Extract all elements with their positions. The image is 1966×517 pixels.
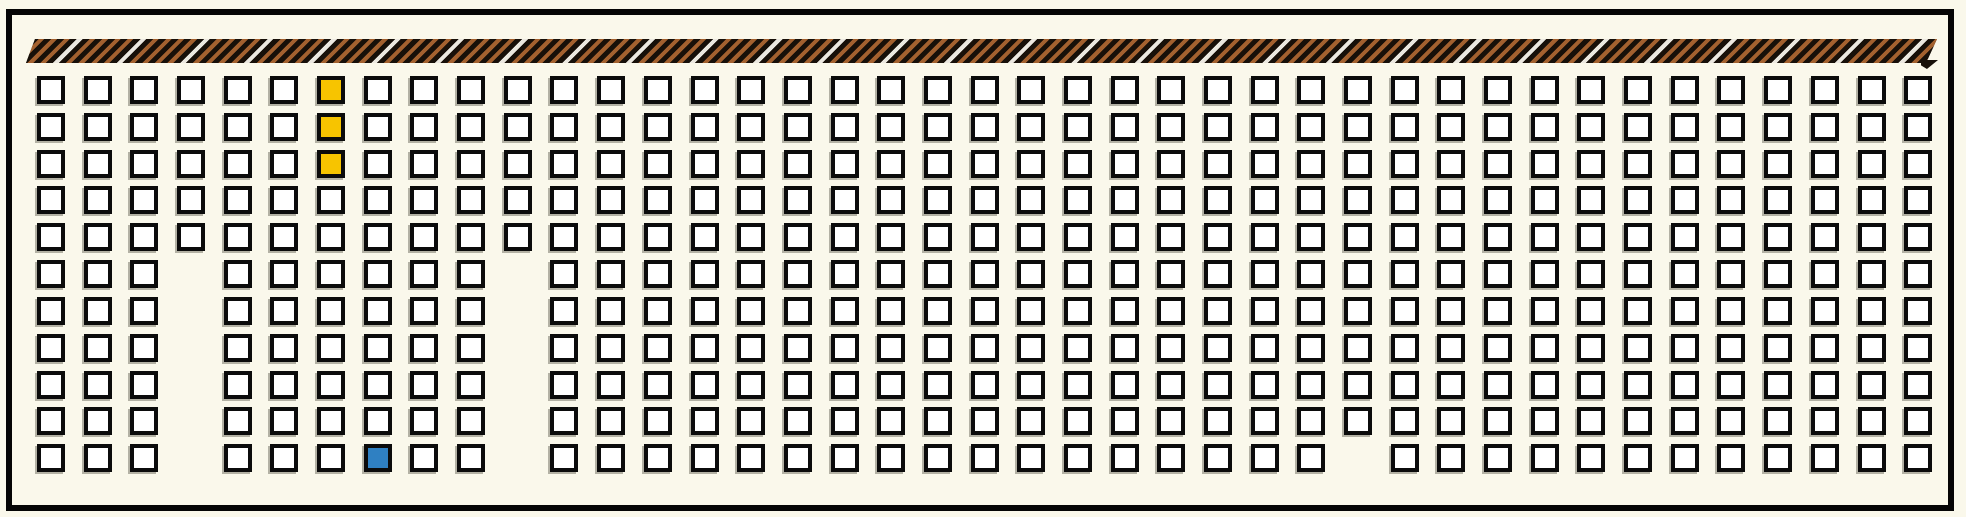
- seat-cell: [1437, 76, 1465, 104]
- seat-cell: [317, 260, 345, 288]
- seat-cell: [1671, 113, 1699, 141]
- seat-cell: [130, 150, 158, 178]
- seat-cell: [1811, 113, 1839, 141]
- seat-cell: [84, 407, 112, 435]
- seat-cell: [831, 371, 859, 399]
- seat-cell: [784, 371, 812, 399]
- seat-cell: [784, 186, 812, 214]
- seat-cell: [1157, 113, 1185, 141]
- seat-cell: [737, 76, 765, 104]
- seat-cell: [784, 334, 812, 362]
- seat-cell: [130, 76, 158, 104]
- seat-cell: [597, 223, 625, 251]
- seat-cell: [1624, 334, 1652, 362]
- seat-cell: [410, 113, 438, 141]
- seat-cell: [1624, 186, 1652, 214]
- seat-cell: [737, 407, 765, 435]
- seat-cell: [644, 444, 672, 472]
- seat-cell: [1764, 334, 1792, 362]
- seat-cell: [1531, 113, 1559, 141]
- seat-cell: [37, 223, 65, 251]
- seat-cell: [971, 113, 999, 141]
- seat-cell: [364, 186, 392, 214]
- seat-cell: [1764, 223, 1792, 251]
- seat-cell: [1064, 371, 1092, 399]
- seat-cell: [1717, 113, 1745, 141]
- seat-cell: [224, 297, 252, 325]
- seat-cell: [691, 407, 719, 435]
- seat-cell: [691, 371, 719, 399]
- seat-cell: [971, 334, 999, 362]
- seat-cell: [1111, 407, 1139, 435]
- seat-cell: [737, 444, 765, 472]
- seat-cell: [1624, 297, 1652, 325]
- seat-cell: [1111, 76, 1139, 104]
- seat-cell: [410, 223, 438, 251]
- seat-cell: [924, 150, 952, 178]
- seat-cell: [1391, 113, 1419, 141]
- seat-cell: [364, 371, 392, 399]
- seat-cell: [924, 113, 952, 141]
- seat-cell: [597, 260, 625, 288]
- seat-cell: [1064, 334, 1092, 362]
- seat-cell: [924, 186, 952, 214]
- seat-cell: [1157, 371, 1185, 399]
- seat-cell: [364, 150, 392, 178]
- seat-cell: [177, 113, 205, 141]
- seat-cell: [270, 260, 298, 288]
- seat-cell: [971, 260, 999, 288]
- seat-cell: [1764, 186, 1792, 214]
- seat-cell: [1017, 186, 1045, 214]
- seat-cell: [691, 150, 719, 178]
- seat-cell: [831, 76, 859, 104]
- seat-cell: [1624, 407, 1652, 435]
- seat-cell: [457, 260, 485, 288]
- seat-cell: [737, 223, 765, 251]
- seat-cell: [1017, 407, 1045, 435]
- seat-cell: [1017, 260, 1045, 288]
- seat-cell: [1391, 223, 1419, 251]
- seat-cell: [37, 334, 65, 362]
- seat-cell: [1111, 260, 1139, 288]
- seat-cell: [1717, 186, 1745, 214]
- seat-cell: [1437, 297, 1465, 325]
- seat-cell-yellow: [317, 150, 345, 178]
- seat-cell: [1017, 334, 1045, 362]
- seat-cell: [1111, 186, 1139, 214]
- seat-cell: [597, 150, 625, 178]
- seat-cell: [644, 297, 672, 325]
- seat-cell: [1157, 150, 1185, 178]
- seat-cell: [457, 444, 485, 472]
- seat-cell: [1157, 334, 1185, 362]
- figure-canvas: [0, 0, 1966, 517]
- seat-cell: [457, 334, 485, 362]
- seat-cell: [1017, 297, 1045, 325]
- seat-cell: [1111, 113, 1139, 141]
- seat-cell: [550, 444, 578, 472]
- seat-cell: [410, 76, 438, 104]
- seat-cell: [270, 186, 298, 214]
- seat-cell: [317, 223, 345, 251]
- seat-cell: [1531, 444, 1559, 472]
- seat-cell: [1577, 186, 1605, 214]
- seat-cell: [877, 371, 905, 399]
- seat-cell: [1904, 113, 1932, 141]
- seat-cell: [1764, 260, 1792, 288]
- seat-cell: [1017, 371, 1045, 399]
- seat-cell: [1577, 407, 1605, 435]
- seat-cell: [1717, 297, 1745, 325]
- seat-cell: [1344, 407, 1372, 435]
- seat-cell: [924, 260, 952, 288]
- seat-cell: [1577, 113, 1605, 141]
- seat-cell: [1671, 371, 1699, 399]
- seat-cell: [1764, 113, 1792, 141]
- seat-cell: [1577, 334, 1605, 362]
- seat-cell: [1157, 76, 1185, 104]
- seat-cell: [877, 113, 905, 141]
- seat-cell: [1297, 334, 1325, 362]
- seat-cell: [1437, 186, 1465, 214]
- seat-cell: [877, 260, 905, 288]
- seat-cell: [1764, 444, 1792, 472]
- seat-cell: [737, 260, 765, 288]
- seat-cell-blue: [364, 444, 392, 472]
- seat-cell: [37, 186, 65, 214]
- seat-cell: [1204, 113, 1232, 141]
- seat-cell: [831, 334, 859, 362]
- seat-cell: [1437, 371, 1465, 399]
- seat-cell: [831, 444, 859, 472]
- seat-cell: [1484, 407, 1512, 435]
- seat-cell: [1251, 444, 1279, 472]
- seat-cell: [597, 186, 625, 214]
- seat-cell: [130, 297, 158, 325]
- seat-cell: [1577, 76, 1605, 104]
- seat-cell: [737, 113, 765, 141]
- seat-cell: [1577, 297, 1605, 325]
- seat-cell: [1251, 76, 1279, 104]
- seat-cell: [37, 297, 65, 325]
- seat-cell: [597, 371, 625, 399]
- seat-cell: [410, 297, 438, 325]
- seat-cell: [364, 76, 392, 104]
- seat-cell: [971, 407, 999, 435]
- seat-cell: [37, 371, 65, 399]
- seat-cell: [1904, 371, 1932, 399]
- seat-cell: [1531, 297, 1559, 325]
- seat-cell: [37, 407, 65, 435]
- seat-cell: [1204, 223, 1232, 251]
- seat-cell: [1811, 260, 1839, 288]
- seat-cell: [224, 371, 252, 399]
- seat-cell: [877, 334, 905, 362]
- seat-cell: [550, 76, 578, 104]
- seat-cell: [971, 223, 999, 251]
- seat-cell: [1484, 260, 1512, 288]
- seat-cell: [1204, 444, 1232, 472]
- seat-cell: [130, 371, 158, 399]
- seat-cell: [1858, 150, 1886, 178]
- seat-cell: [1297, 186, 1325, 214]
- seat-cell: [550, 334, 578, 362]
- seat-cell: [1858, 223, 1886, 251]
- seat-cell: [130, 186, 158, 214]
- seat-cell: [784, 150, 812, 178]
- seat-cell: [550, 150, 578, 178]
- seat-cell: [1251, 260, 1279, 288]
- seat-cell: [1671, 150, 1699, 178]
- seat-cell: [1064, 186, 1092, 214]
- seat-cell: [831, 260, 859, 288]
- seat-cell: [410, 444, 438, 472]
- seat-cell: [1531, 223, 1559, 251]
- seat-cell-yellow: [317, 113, 345, 141]
- seat-cell: [1904, 444, 1932, 472]
- seat-cell: [1017, 444, 1045, 472]
- seat-cell: [1624, 444, 1652, 472]
- seat-cell: [224, 113, 252, 141]
- seat-cell: [1437, 444, 1465, 472]
- seat-cell: [84, 150, 112, 178]
- seat-cell: [924, 334, 952, 362]
- seat-cell: [1531, 76, 1559, 104]
- seat-cell: [410, 186, 438, 214]
- seat-cell: [1391, 76, 1419, 104]
- seat-cell: [924, 76, 952, 104]
- seat-cell: [1811, 334, 1839, 362]
- seat-cell: [84, 334, 112, 362]
- seat-cell: [1297, 223, 1325, 251]
- seat-cell: [1204, 407, 1232, 435]
- seat-cell: [550, 260, 578, 288]
- seat-cell: [1297, 371, 1325, 399]
- seat-cell: [1904, 150, 1932, 178]
- seat-cell: [1858, 444, 1886, 472]
- seat-cell: [1204, 260, 1232, 288]
- seat-cell: [1297, 260, 1325, 288]
- seat-cell: [1251, 150, 1279, 178]
- seat-cell: [1858, 186, 1886, 214]
- seat-cell: [877, 407, 905, 435]
- seat-cell: [877, 444, 905, 472]
- seat-cell: [1484, 444, 1512, 472]
- seat-cell: [1391, 297, 1419, 325]
- seat-cell: [1111, 297, 1139, 325]
- seat-cell: [317, 186, 345, 214]
- seat-cell: [130, 223, 158, 251]
- seat-cell: [37, 444, 65, 472]
- seat-cell: [1624, 223, 1652, 251]
- seat-cell: [1624, 260, 1652, 288]
- seat-cell: [1717, 334, 1745, 362]
- seat-cell: [1297, 297, 1325, 325]
- seat-cell: [364, 260, 392, 288]
- seat-cell: [1251, 297, 1279, 325]
- seat-cell: [1157, 260, 1185, 288]
- seat-cell: [1811, 76, 1839, 104]
- seat-cell: [457, 371, 485, 399]
- seat-cell: [37, 76, 65, 104]
- seat-cell: [831, 186, 859, 214]
- seat-cell: [1017, 113, 1045, 141]
- seat-cell: [130, 407, 158, 435]
- seat-cell: [1251, 407, 1279, 435]
- seat-cell: [317, 407, 345, 435]
- seat-cell: [1344, 371, 1372, 399]
- seat-cell: [1577, 371, 1605, 399]
- seat-cell: [1484, 186, 1512, 214]
- seat-cell: [1391, 444, 1419, 472]
- seat-cell: [1157, 444, 1185, 472]
- seat-cell: [224, 260, 252, 288]
- seat-cell: [1344, 297, 1372, 325]
- seat-cell: [691, 223, 719, 251]
- seat-cell: [1297, 76, 1325, 104]
- seat-cell: [550, 407, 578, 435]
- seat-cell: [84, 297, 112, 325]
- seat-cell: [737, 150, 765, 178]
- seat-cell: [1764, 150, 1792, 178]
- seat-cell: [550, 297, 578, 325]
- seat-cell: [1671, 223, 1699, 251]
- seat-cell: [877, 297, 905, 325]
- seat-cell: [177, 186, 205, 214]
- seat-cell: [224, 407, 252, 435]
- seat-cell: [410, 334, 438, 362]
- seat-cell: [1764, 76, 1792, 104]
- seat-cell: [1251, 371, 1279, 399]
- seat-cell: [691, 297, 719, 325]
- seat-cell: [270, 150, 298, 178]
- seat-cell: [737, 186, 765, 214]
- seat-cell: [224, 223, 252, 251]
- seat-cell: [410, 371, 438, 399]
- seat-cell: [1437, 150, 1465, 178]
- seat-cell: [737, 297, 765, 325]
- seat-cell: [504, 186, 532, 214]
- seat-cell: [130, 334, 158, 362]
- seat-cell: [924, 444, 952, 472]
- seat-cell: [1811, 407, 1839, 435]
- seat-cell: [1858, 297, 1886, 325]
- seat-cell: [504, 223, 532, 251]
- seat-cell: [37, 150, 65, 178]
- seat-cell: [1391, 407, 1419, 435]
- seat-cell: [1251, 223, 1279, 251]
- seat-cell: [550, 186, 578, 214]
- seat-cell: [1344, 76, 1372, 104]
- seat-cell: [971, 444, 999, 472]
- seat-cell: [1204, 186, 1232, 214]
- seat-cell: [1764, 297, 1792, 325]
- seat-cell: [924, 407, 952, 435]
- seat-cell: [270, 407, 298, 435]
- seat-cell: [597, 334, 625, 362]
- seat-cell: [1344, 150, 1372, 178]
- seat-cell: [644, 186, 672, 214]
- seat-cell: [1484, 297, 1512, 325]
- seat-cell: [364, 113, 392, 141]
- seat-cell: [831, 150, 859, 178]
- seat-cell: [691, 186, 719, 214]
- seat-cell: [644, 150, 672, 178]
- seat-cell: [270, 76, 298, 104]
- seat-cell: [1111, 371, 1139, 399]
- seat-cell: [597, 297, 625, 325]
- seat-cell: [1251, 334, 1279, 362]
- seat-cell: [84, 76, 112, 104]
- seat-cell: [737, 334, 765, 362]
- seat-cell: [1577, 150, 1605, 178]
- seat-cell: [924, 297, 952, 325]
- seat-cell: [224, 76, 252, 104]
- seat-cell: [1437, 223, 1465, 251]
- seat-cell: [550, 371, 578, 399]
- seat-cell: [1297, 444, 1325, 472]
- seat-cell: [691, 260, 719, 288]
- seat-cell: [84, 260, 112, 288]
- seat-cell: [597, 113, 625, 141]
- seat-cell: [224, 444, 252, 472]
- seat-cell: [1204, 150, 1232, 178]
- seat-cell: [644, 260, 672, 288]
- seat-cell: [1717, 223, 1745, 251]
- seat-cell: [1858, 260, 1886, 288]
- seat-cell: [1484, 371, 1512, 399]
- seat-cell: [1671, 444, 1699, 472]
- seat-cell: [1204, 371, 1232, 399]
- seat-cell: [1344, 113, 1372, 141]
- seat-cell: [130, 444, 158, 472]
- seat-cell: [224, 186, 252, 214]
- seat-cell: [924, 371, 952, 399]
- seat-cell: [1764, 407, 1792, 435]
- seat-cell: [1811, 444, 1839, 472]
- seat-cell: [1624, 371, 1652, 399]
- seat-cell: [410, 407, 438, 435]
- seat-cell: [971, 186, 999, 214]
- seat-cell: [597, 444, 625, 472]
- seat-cell: [1624, 150, 1652, 178]
- seat-cell: [1064, 444, 1092, 472]
- seat-cell: [1344, 260, 1372, 288]
- seat-cell: [1811, 223, 1839, 251]
- seat-cell: [1764, 371, 1792, 399]
- seat-cell: [1297, 113, 1325, 141]
- seat-cell: [784, 76, 812, 104]
- seat-cell: [1204, 76, 1232, 104]
- seat-cell: [1717, 444, 1745, 472]
- seat-cell: [1017, 76, 1045, 104]
- seat-cell: [1904, 297, 1932, 325]
- seat-cell: [831, 113, 859, 141]
- seat-cell: [1111, 444, 1139, 472]
- seat-cell: [1157, 223, 1185, 251]
- seat-cell: [364, 407, 392, 435]
- seat-cell: [1811, 297, 1839, 325]
- seat-cell: [1904, 76, 1932, 104]
- seat-cell: [877, 223, 905, 251]
- seat-cell: [1064, 297, 1092, 325]
- seat-cell: [1157, 186, 1185, 214]
- seat-cell: [84, 186, 112, 214]
- seat-cell: [597, 76, 625, 104]
- seat-cell: [1344, 334, 1372, 362]
- seat-cell: [550, 223, 578, 251]
